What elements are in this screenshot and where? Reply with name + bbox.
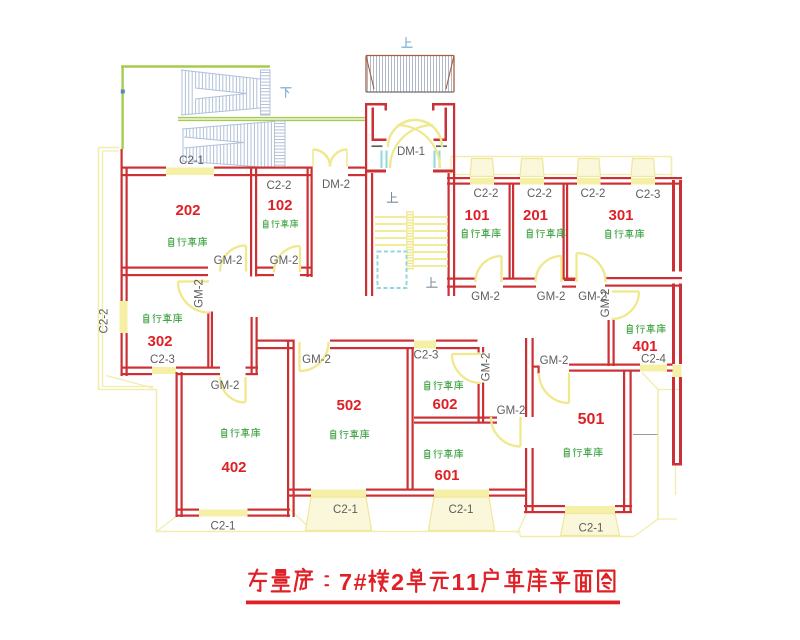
svg-text:1: 1 (466, 569, 479, 595)
svg-text:GM-2: GM-2 (270, 255, 299, 267)
svg-text:C2-4: C2-4 (641, 354, 667, 366)
svg-text:101: 101 (464, 207, 489, 224)
svg-text:602: 602 (432, 396, 457, 413)
svg-text:GM-2: GM-2 (194, 279, 206, 308)
svg-text:C2-2: C2-2 (581, 188, 606, 200)
svg-text:C2-3: C2-3 (414, 350, 439, 362)
svg-text:201: 201 (523, 207, 548, 224)
svg-text:7: 7 (339, 569, 352, 595)
svg-text:GM-2: GM-2 (497, 405, 526, 417)
svg-text:C2-3: C2-3 (636, 189, 661, 201)
svg-text:GM-2: GM-2 (540, 355, 569, 367)
svg-text:DM-2: DM-2 (322, 179, 350, 191)
svg-text:C2-2: C2-2 (474, 188, 499, 200)
svg-text:502: 502 (336, 397, 361, 414)
svg-text:GM-2: GM-2 (471, 291, 500, 303)
svg-text:401: 401 (632, 338, 657, 355)
svg-text:2: 2 (391, 569, 404, 595)
svg-text:C2-1: C2-1 (179, 155, 204, 167)
svg-text:202: 202 (175, 202, 200, 219)
svg-text:DM-1: DM-1 (397, 146, 425, 158)
svg-text:302: 302 (147, 333, 172, 350)
svg-text:GM-2: GM-2 (211, 380, 240, 392)
svg-text:GM-2: GM-2 (537, 291, 566, 303)
svg-text:501: 501 (578, 411, 605, 428)
svg-text:301: 301 (608, 207, 633, 224)
svg-text:C2-2: C2-2 (527, 188, 552, 200)
svg-text:402: 402 (221, 459, 246, 476)
svg-text:C2-1: C2-1 (449, 504, 474, 516)
svg-text:C2-1: C2-1 (579, 523, 604, 535)
svg-text:#: # (353, 569, 366, 595)
svg-text:C2-1: C2-1 (211, 521, 236, 533)
svg-text:GM-2: GM-2 (302, 354, 331, 366)
svg-text:C2-2: C2-2 (99, 309, 111, 334)
svg-text:1: 1 (451, 569, 464, 595)
svg-text:GM-2: GM-2 (481, 353, 493, 382)
svg-text:C2-3: C2-3 (150, 354, 175, 366)
svg-text:601: 601 (434, 467, 459, 484)
svg-text:GM-2: GM-2 (214, 255, 243, 267)
svg-text:C2-2: C2-2 (267, 180, 292, 192)
svg-text:C2-1: C2-1 (333, 504, 358, 516)
svg-text:GM-2: GM-2 (600, 289, 612, 318)
svg-text:102: 102 (267, 197, 292, 214)
